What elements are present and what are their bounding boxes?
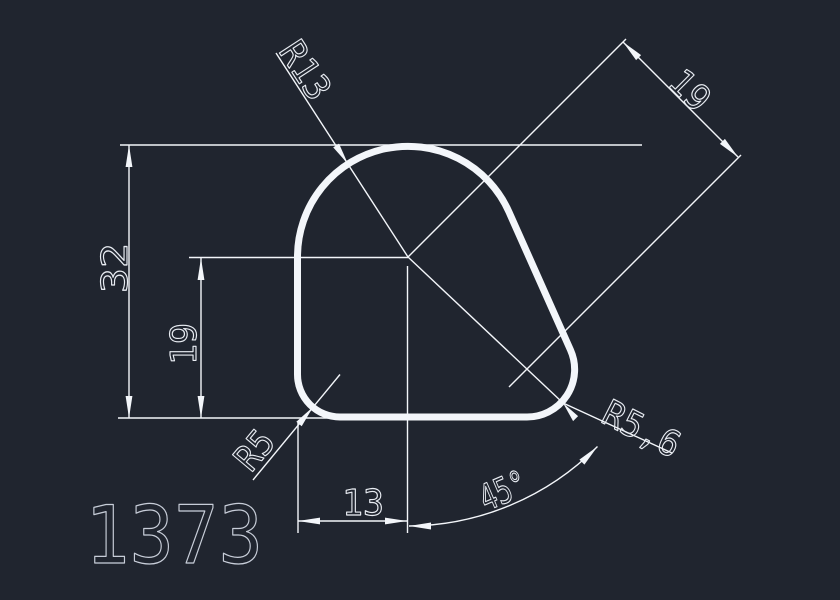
- label-center-height: 19: [164, 323, 205, 365]
- label-bottom-width: 13: [342, 483, 384, 524]
- label-total-height: 32: [95, 243, 136, 293]
- part-number: 1373: [85, 489, 263, 582]
- cad-drawing-canvas: R13 19 32 19 R5 R5,6 13 45° 1373: [0, 0, 840, 600]
- technical-drawing: R13 19 32 19 R5 R5,6 13 45° 1373: [0, 0, 840, 600]
